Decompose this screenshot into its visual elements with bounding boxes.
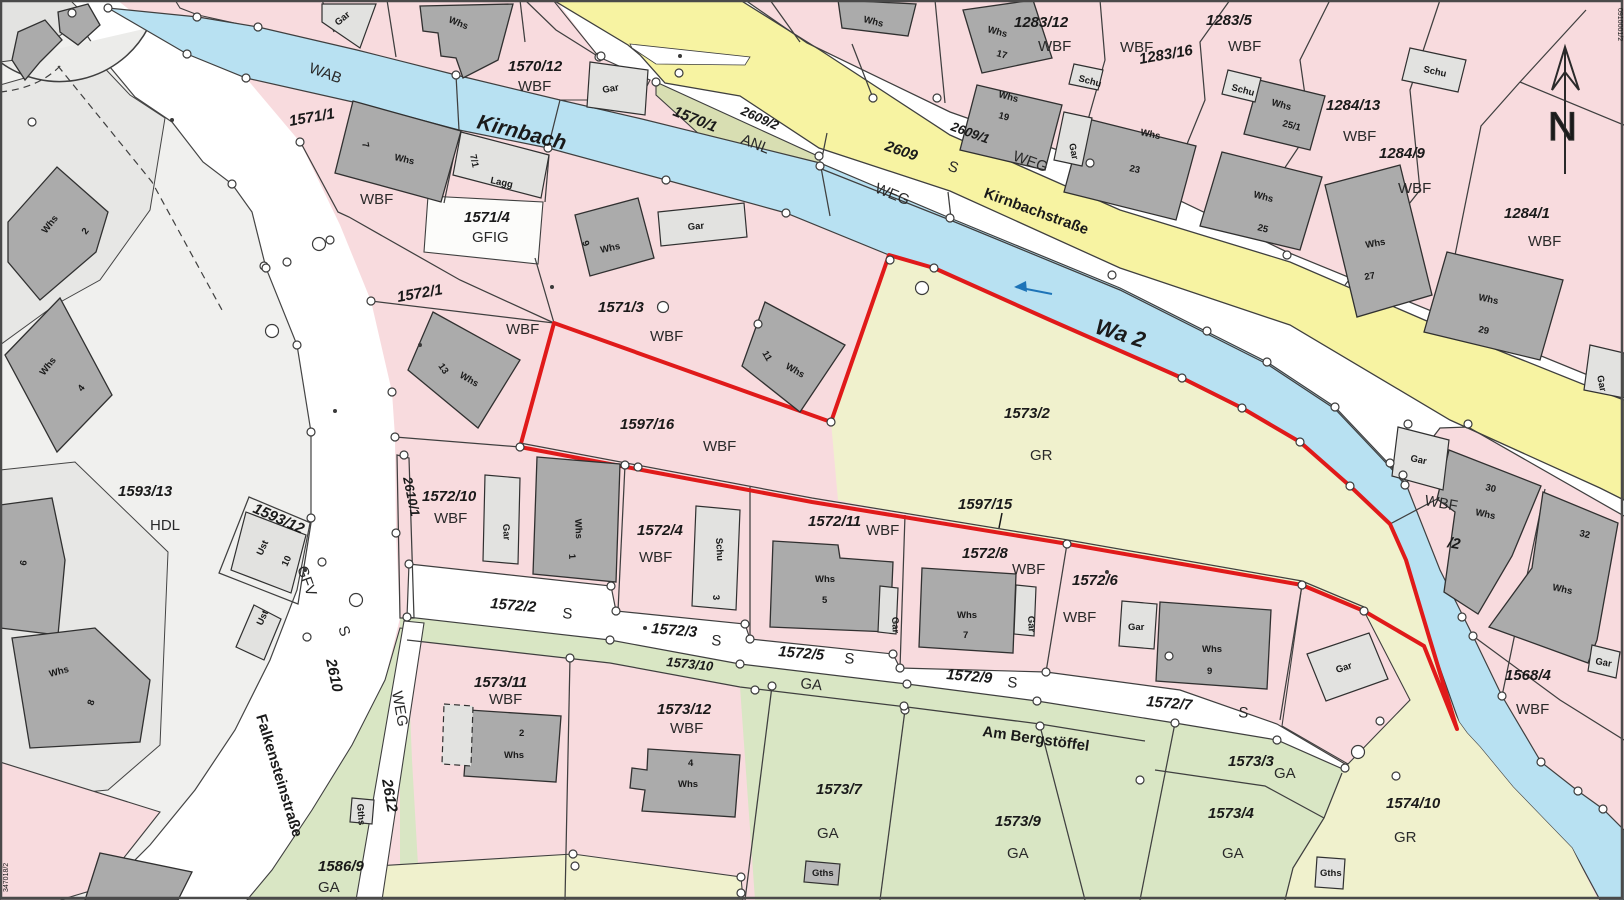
- svg-text:S: S: [1007, 674, 1018, 692]
- svg-text:HDL: HDL: [150, 517, 180, 534]
- svg-text:Schu: Schu: [713, 538, 725, 562]
- svg-text:S: S: [711, 632, 722, 650]
- svg-text:S: S: [844, 650, 855, 668]
- svg-text:1283/12: 1283/12: [1014, 14, 1069, 31]
- svg-text:30: 30: [1484, 482, 1497, 495]
- svg-text:WBF: WBF: [703, 438, 736, 455]
- svg-text:GFIG: GFIG: [472, 229, 509, 246]
- svg-text:1573/9: 1573/9: [995, 813, 1042, 830]
- svg-text:23: 23: [1128, 163, 1141, 176]
- svg-text:GA: GA: [1274, 765, 1296, 782]
- svg-text:29: 29: [1477, 324, 1490, 337]
- svg-text:Whs: Whs: [957, 610, 977, 621]
- svg-text:5: 5: [822, 595, 828, 606]
- svg-text:Whs: Whs: [678, 779, 698, 790]
- svg-text:Gths: Gths: [812, 868, 834, 879]
- svg-text:N: N: [1548, 105, 1577, 149]
- svg-text:1572/6: 1572/6: [1072, 572, 1119, 589]
- svg-text:1573/7: 1573/7: [816, 781, 863, 798]
- svg-text:1597/16: 1597/16: [620, 416, 675, 433]
- svg-text:1573/11: 1573/11: [474, 674, 527, 691]
- svg-text:Gar: Gar: [500, 524, 512, 541]
- svg-text:GR: GR: [1394, 829, 1417, 846]
- svg-text:GA: GA: [800, 675, 823, 694]
- svg-text:Gar: Gar: [889, 617, 901, 634]
- svg-text:WBF: WBF: [1516, 701, 1549, 718]
- svg-text:WBF: WBF: [1398, 180, 1431, 197]
- svg-text:1572/8: 1572/8: [962, 545, 1009, 562]
- svg-text:1593/13: 1593/13: [118, 483, 173, 500]
- svg-text:1571/4: 1571/4: [464, 209, 511, 226]
- svg-text:1284/1: 1284/1: [1504, 205, 1550, 222]
- svg-text:WBF: WBF: [866, 522, 899, 539]
- svg-text:S: S: [1238, 704, 1249, 722]
- svg-text:32: 32: [1578, 528, 1591, 541]
- svg-text:Whs: Whs: [1202, 644, 1222, 655]
- svg-text:WBF: WBF: [1228, 38, 1261, 55]
- svg-text:3: 3: [710, 595, 721, 601]
- svg-text:WBF: WBF: [1528, 233, 1561, 250]
- svg-text:1572/10: 1572/10: [422, 488, 477, 505]
- svg-text:347018/2: 347018/2: [3, 863, 10, 892]
- svg-text:Gar: Gar: [1128, 622, 1145, 633]
- svg-text:1283/5: 1283/5: [1206, 12, 1253, 29]
- svg-text:1572/4: 1572/4: [637, 522, 684, 539]
- svg-text:0910001/2: 0910001/2: [1616, 8, 1623, 41]
- svg-text:WBF: WBF: [1063, 609, 1096, 626]
- svg-text:Whs: Whs: [572, 519, 584, 540]
- svg-text:WBF: WBF: [639, 549, 672, 566]
- svg-text:Whs: Whs: [815, 574, 835, 585]
- svg-text:4: 4: [688, 758, 694, 769]
- svg-text:1573/4: 1573/4: [1208, 805, 1255, 822]
- svg-text:1570/12: 1570/12: [508, 58, 563, 75]
- svg-text:27: 27: [1364, 270, 1376, 283]
- svg-text:Whs: Whs: [504, 750, 524, 761]
- svg-text:Gar: Gar: [1025, 616, 1037, 633]
- svg-text:GA: GA: [1222, 845, 1244, 862]
- svg-text:WBF: WBF: [670, 720, 703, 737]
- svg-text:WBF: WBF: [650, 328, 683, 345]
- svg-text:1573/2: 1573/2: [1004, 405, 1051, 422]
- svg-text:WBF: WBF: [360, 191, 393, 208]
- svg-text:WBF: WBF: [1012, 561, 1045, 578]
- svg-text:GA: GA: [318, 879, 340, 896]
- svg-text:9: 9: [1207, 666, 1212, 677]
- svg-text:WBF: WBF: [1343, 128, 1376, 145]
- svg-text:1597/15: 1597/15: [958, 496, 1013, 513]
- svg-text:1573/3: 1573/3: [1228, 753, 1275, 770]
- svg-text:GR: GR: [1030, 447, 1053, 464]
- svg-text:1284/13: 1284/13: [1326, 97, 1381, 114]
- svg-text:WBF: WBF: [1038, 38, 1071, 55]
- svg-text:1568/4: 1568/4: [1505, 667, 1552, 684]
- svg-text:1572/11: 1572/11: [808, 513, 861, 530]
- svg-text:WBF: WBF: [434, 510, 467, 527]
- svg-text:Gths: Gths: [354, 803, 367, 826]
- svg-text:1586/9: 1586/9: [318, 858, 365, 875]
- svg-text:WBF: WBF: [506, 321, 539, 338]
- svg-text:1574/10: 1574/10: [1386, 795, 1441, 812]
- svg-text:1573/12: 1573/12: [657, 701, 712, 718]
- svg-text:GA: GA: [1007, 845, 1029, 862]
- svg-text:Gar: Gar: [687, 221, 705, 233]
- svg-text:Gths: Gths: [1320, 868, 1342, 879]
- svg-text:GA: GA: [817, 825, 839, 842]
- svg-text:1284/9: 1284/9: [1379, 145, 1426, 162]
- svg-text:WBF: WBF: [489, 691, 522, 708]
- svg-text:1571/3: 1571/3: [598, 299, 645, 316]
- svg-text:WBF: WBF: [518, 78, 551, 95]
- svg-text:S: S: [562, 605, 573, 623]
- svg-text:7: 7: [963, 630, 968, 641]
- svg-text:2: 2: [519, 728, 524, 739]
